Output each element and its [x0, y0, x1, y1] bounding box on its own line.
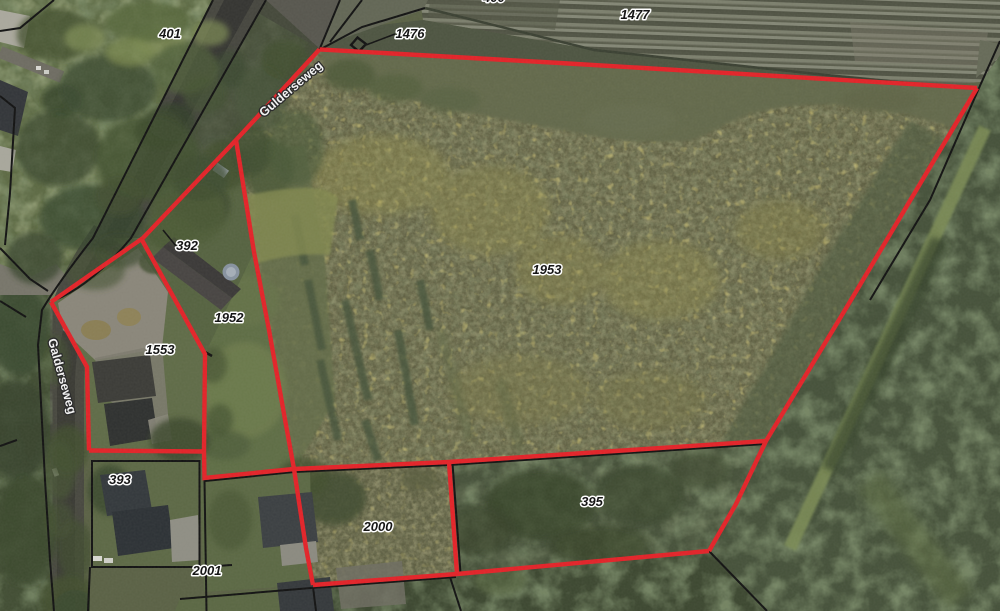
svg-text:400: 400	[482, 0, 505, 5]
svg-text:1476: 1476	[396, 26, 426, 41]
svg-text:2001: 2001	[192, 563, 222, 578]
svg-text:395: 395	[581, 494, 603, 509]
svg-text:392: 392	[176, 238, 198, 253]
svg-text:401: 401	[158, 26, 181, 41]
svg-text:1953: 1953	[533, 262, 563, 277]
svg-text:1553: 1553	[146, 342, 176, 357]
svg-text:1952: 1952	[215, 310, 245, 325]
svg-text:2000: 2000	[363, 519, 394, 534]
svg-text:1477: 1477	[621, 7, 651, 22]
svg-text:393: 393	[109, 472, 131, 487]
